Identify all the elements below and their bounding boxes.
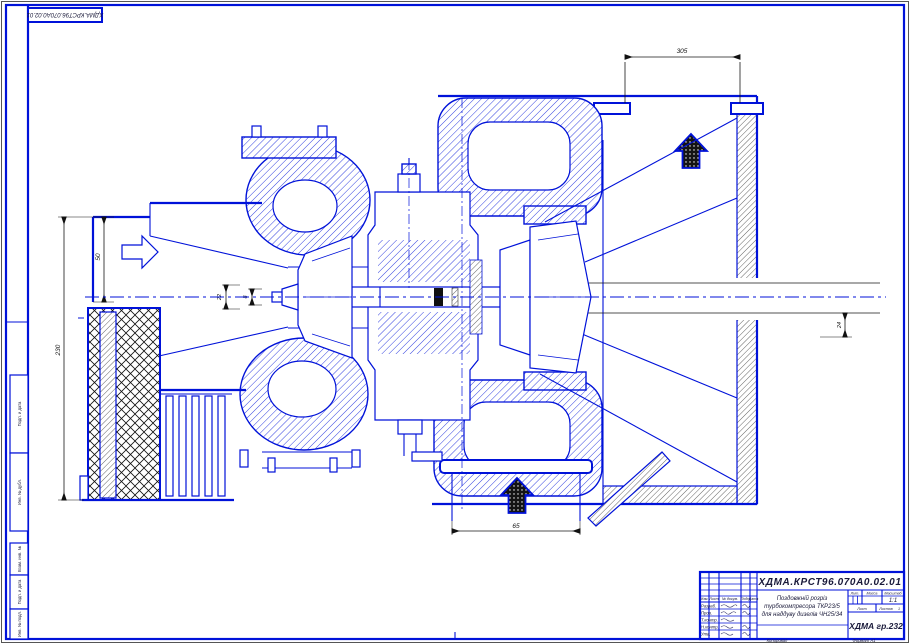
cooling-fin (179, 396, 186, 496)
role-utv: Утв. (701, 632, 711, 637)
header-lit: Лит. (850, 592, 860, 596)
bottom-flange (440, 460, 592, 473)
sheet-label: Лист (856, 607, 867, 611)
cooling-fin (205, 396, 212, 496)
col-izm: Изм. (701, 597, 709, 601)
title-doc-number: ХДМА.КРСТ96.070А0.02.01 (758, 577, 902, 588)
cooling-fin (192, 396, 199, 496)
cooling-fin (218, 396, 225, 496)
flange-bolt (318, 126, 327, 137)
corner-doc-number: ХДМА.КРСТ96.070А0.02.01 (27, 11, 105, 17)
nozzle-ring-top (524, 206, 586, 224)
corner-stamp: ХДМА.КРСТ96.070А0.02.01 (27, 8, 105, 22)
role-razrab: Разраб. (701, 604, 716, 609)
discharge-flange (242, 137, 336, 158)
col-data: Дата (748, 597, 759, 601)
flange-bolt (252, 126, 261, 137)
bolt (352, 450, 360, 467)
sheets-label: Листов (878, 607, 893, 611)
title-description-1: Поздовжній розріз (777, 595, 828, 602)
role-tkontr: Т.контр. (701, 618, 718, 623)
footer-copied: Копировал (767, 638, 788, 643)
mounting-foot (80, 476, 88, 500)
side-stamp-label: Инв. № подл. (17, 611, 22, 637)
dim-230-label: 230 (55, 344, 62, 356)
title-description-3: для наддуву дизелів ЧН25/34 (762, 612, 843, 618)
footer-format: Формат A1 (853, 638, 876, 643)
bolt (268, 458, 275, 472)
cooling-fin (166, 396, 173, 496)
side-stamp-label: Взам. инв. № (17, 546, 22, 572)
dim-65-label: 65 (512, 523, 520, 530)
dim-50-label: 50 (95, 253, 102, 261)
duct-flange-left (594, 103, 630, 114)
oil-drain-bottom (398, 420, 422, 434)
pipe-stub (412, 452, 442, 461)
role-nkontr: Н.контр. (701, 625, 719, 630)
side-stamp-label: Подп. и дата (17, 401, 22, 426)
role-prov: Пров. (701, 611, 712, 616)
side-stamps: Подп. и дата Инв. № дубл. Взам. инв. № П… (10, 375, 28, 639)
dim-305-label: 305 (677, 48, 688, 55)
col-list: Лист (708, 597, 719, 601)
duct-flange-right (731, 103, 763, 114)
bolt (330, 458, 337, 472)
side-stamp-label: Подп. и дата (17, 579, 22, 604)
title-description-2: турбокомпресора ТКР23/5 (764, 604, 840, 610)
header-scale: Масштаб (884, 592, 902, 596)
sheets-value: 1 (898, 607, 900, 611)
org-group: ХДМА гр.232 (848, 621, 903, 631)
col-dokum: № докум. (722, 597, 738, 601)
cad-drawing-viewer: ХДМА.КРСТ96.070А0.02.01 Подп. и дата Инв… (0, 0, 910, 644)
dim-24-label: 24 (837, 322, 843, 329)
side-stamp-label: Инв. № дубл. (17, 479, 22, 505)
title-block: ХДМА.КРСТ96.070А0.02.01 Поздовжній розрі… (700, 572, 904, 643)
bolt (240, 450, 248, 467)
nozzle-ring-bottom (524, 372, 586, 390)
header-mass: Масса (867, 592, 878, 596)
scale-value: 1:1 (889, 598, 897, 604)
drawing-sheet: ХДМА.КРСТ96.070А0.02.01 Подп. и дата Инв… (0, 0, 910, 644)
